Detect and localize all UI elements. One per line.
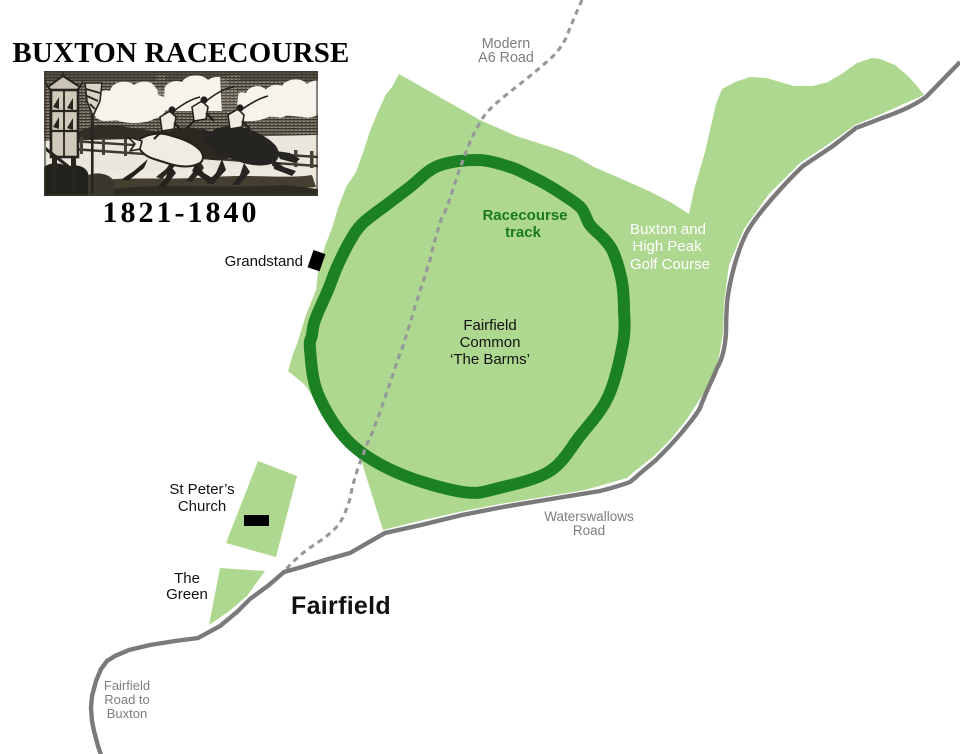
svg-text:High Peak: High Peak: [632, 238, 702, 255]
svg-text:Road: Road: [573, 523, 605, 538]
svg-text:Grandstand: Grandstand: [225, 253, 303, 270]
svg-text:Buxton and: Buxton and: [630, 221, 706, 238]
svg-text:Racecourse: Racecourse: [482, 207, 567, 224]
svg-text:Green: Green: [166, 586, 208, 603]
svg-text:Waterswallows: Waterswallows: [544, 509, 634, 524]
svg-text:The: The: [174, 570, 200, 587]
svg-text:Buxton: Buxton: [107, 706, 147, 721]
svg-text:Fairfield: Fairfield: [291, 592, 391, 620]
svg-text:St Peter’s: St Peter’s: [169, 481, 234, 498]
svg-text:Road to: Road to: [104, 692, 150, 707]
svg-text:track: track: [505, 224, 542, 241]
svg-text:BUXTON RACECOURSE: BUXTON RACECOURSE: [12, 37, 349, 69]
svg-text:1821-1840: 1821-1840: [103, 196, 260, 229]
svg-text:Fairfield: Fairfield: [104, 678, 150, 693]
svg-text:Fairfield: Fairfield: [463, 317, 516, 334]
svg-text:Church: Church: [178, 498, 226, 515]
svg-text:Common: Common: [460, 334, 521, 351]
svg-text:‘The Barms’: ‘The Barms’: [450, 351, 530, 368]
svg-text:A6 Road: A6 Road: [478, 50, 534, 66]
svg-text:Golf Course: Golf Course: [630, 256, 710, 273]
